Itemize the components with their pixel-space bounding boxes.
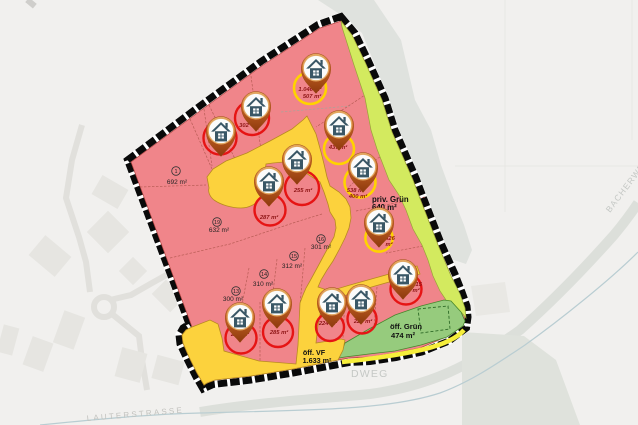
svg-text:301 m²: 301 m² <box>311 244 332 251</box>
svg-text:507 m²: 507 m² <box>303 93 322 100</box>
svg-text:16: 16 <box>318 237 324 243</box>
svg-text:310 m²: 310 m² <box>253 281 274 288</box>
svg-text:474 m²: 474 m² <box>391 331 416 340</box>
svg-text:öff. Grün: öff. Grün <box>390 322 422 331</box>
svg-text:255 m²: 255 m² <box>293 187 313 194</box>
svg-text:15: 15 <box>291 254 297 260</box>
svg-text:19: 19 <box>214 220 220 226</box>
svg-text:14: 14 <box>261 272 267 278</box>
svg-text:m²: m² <box>412 287 420 294</box>
svg-text:13: 13 <box>233 289 239 295</box>
svg-text:1.633 m²: 1.633 m² <box>303 356 332 365</box>
svg-text:400 m²: 400 m² <box>348 193 368 200</box>
svg-text:m²: m² <box>385 241 393 248</box>
svg-text:287 m²: 287 m² <box>259 214 279 221</box>
svg-text:312 m²: 312 m² <box>282 263 303 270</box>
svg-text:285 m²: 285 m² <box>269 329 289 336</box>
svg-text:DWEG: DWEG <box>351 368 388 380</box>
svg-text:632 m²: 632 m² <box>209 227 230 234</box>
svg-text:302: 302 <box>239 123 249 129</box>
svg-text:300 m²: 300 m² <box>223 296 244 303</box>
svg-text:692 m²: 692 m² <box>167 179 188 186</box>
svg-text:1: 1 <box>174 169 177 175</box>
